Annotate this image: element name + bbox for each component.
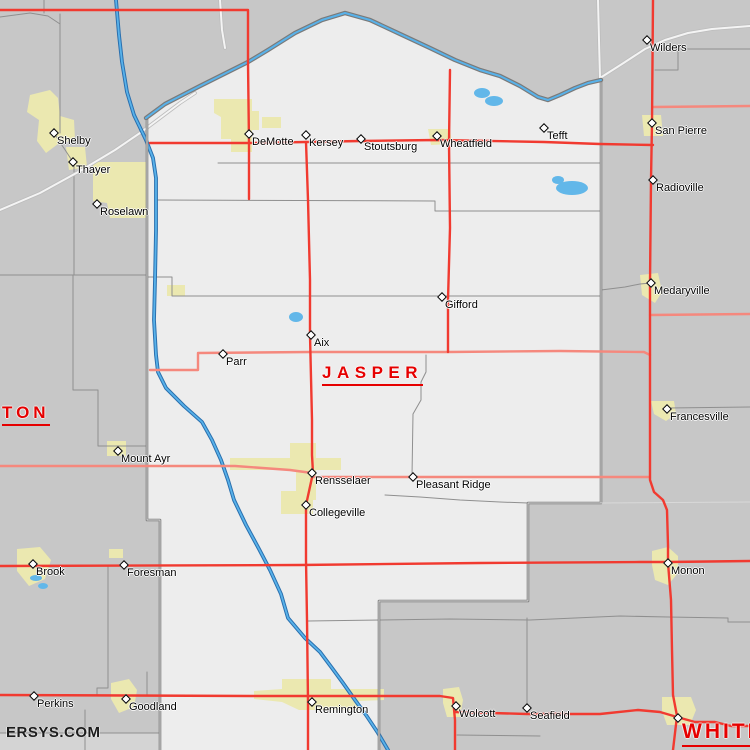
jasper-county-region bbox=[146, 13, 601, 750]
map-canvas[interactable]: Shelby Thayer Roselawn DeMotte Kersey St… bbox=[0, 0, 750, 750]
faint-county-line bbox=[601, 502, 750, 503]
map-graphics bbox=[0, 0, 750, 750]
watermark: ERSYS.COM bbox=[6, 724, 101, 741]
